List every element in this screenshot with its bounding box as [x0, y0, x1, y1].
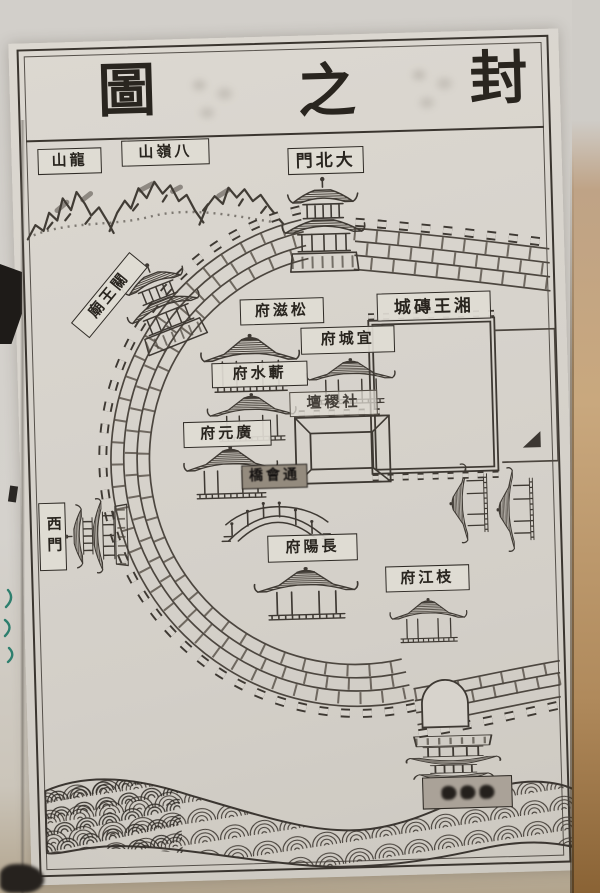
label-changyang-mansion: 府陽長 — [267, 533, 358, 563]
label-sheji-altar: 壇稷社 — [289, 390, 378, 417]
city-wall-northeast — [352, 217, 550, 296]
label-river-gate-illegible — [422, 775, 513, 810]
mountain-range — [26, 178, 283, 239]
left-margin-ink-mark — [8, 486, 18, 503]
changyang-mansion-pavilion — [254, 566, 359, 621]
ink-smudge — [479, 785, 494, 799]
label-zhijiang-mansion: 府江枝 — [385, 564, 470, 592]
label-yicheng-mansion: 府城宜 — [300, 325, 395, 355]
page-fold-line — [20, 120, 25, 893]
zhijiang-mansion-pavilion — [390, 597, 468, 643]
ink-smudge — [460, 785, 475, 799]
label-qishui-mansion: 府水蘄 — [211, 361, 308, 389]
photograph-of-book-page: 圖 之 封 — [0, 0, 600, 893]
label-songzi-mansion: 府滋松 — [240, 297, 325, 325]
ink-smudge — [441, 786, 456, 800]
label-tonghui-bridge: 橋會通 — [241, 464, 308, 490]
teal-marker-scribbles — [0, 584, 24, 676]
city-wall-southeast — [413, 661, 562, 734]
bottom-left-shadow-blob — [0, 864, 44, 893]
north-gate-tower — [281, 176, 366, 272]
label-north-gate: 門北大 — [287, 146, 364, 175]
label-xiangwang-brick-city: 城磚王湘 — [376, 290, 491, 321]
east-sideways-pavilion-2 — [495, 467, 534, 552]
label-west-gate: 西門 — [38, 502, 67, 571]
label-balingshan: 山嶺八 — [121, 138, 210, 166]
label-guangyuan-mansion: 府元廣 — [183, 420, 272, 448]
book-edge-right — [572, 0, 600, 893]
label-longshan: 山龍 — [37, 147, 102, 175]
book-edge-shadow — [570, 150, 574, 893]
map-page: 圖 之 封 — [8, 28, 581, 885]
water-gate-arch — [421, 679, 468, 727]
xiangwang-brick-city-square — [368, 312, 558, 478]
